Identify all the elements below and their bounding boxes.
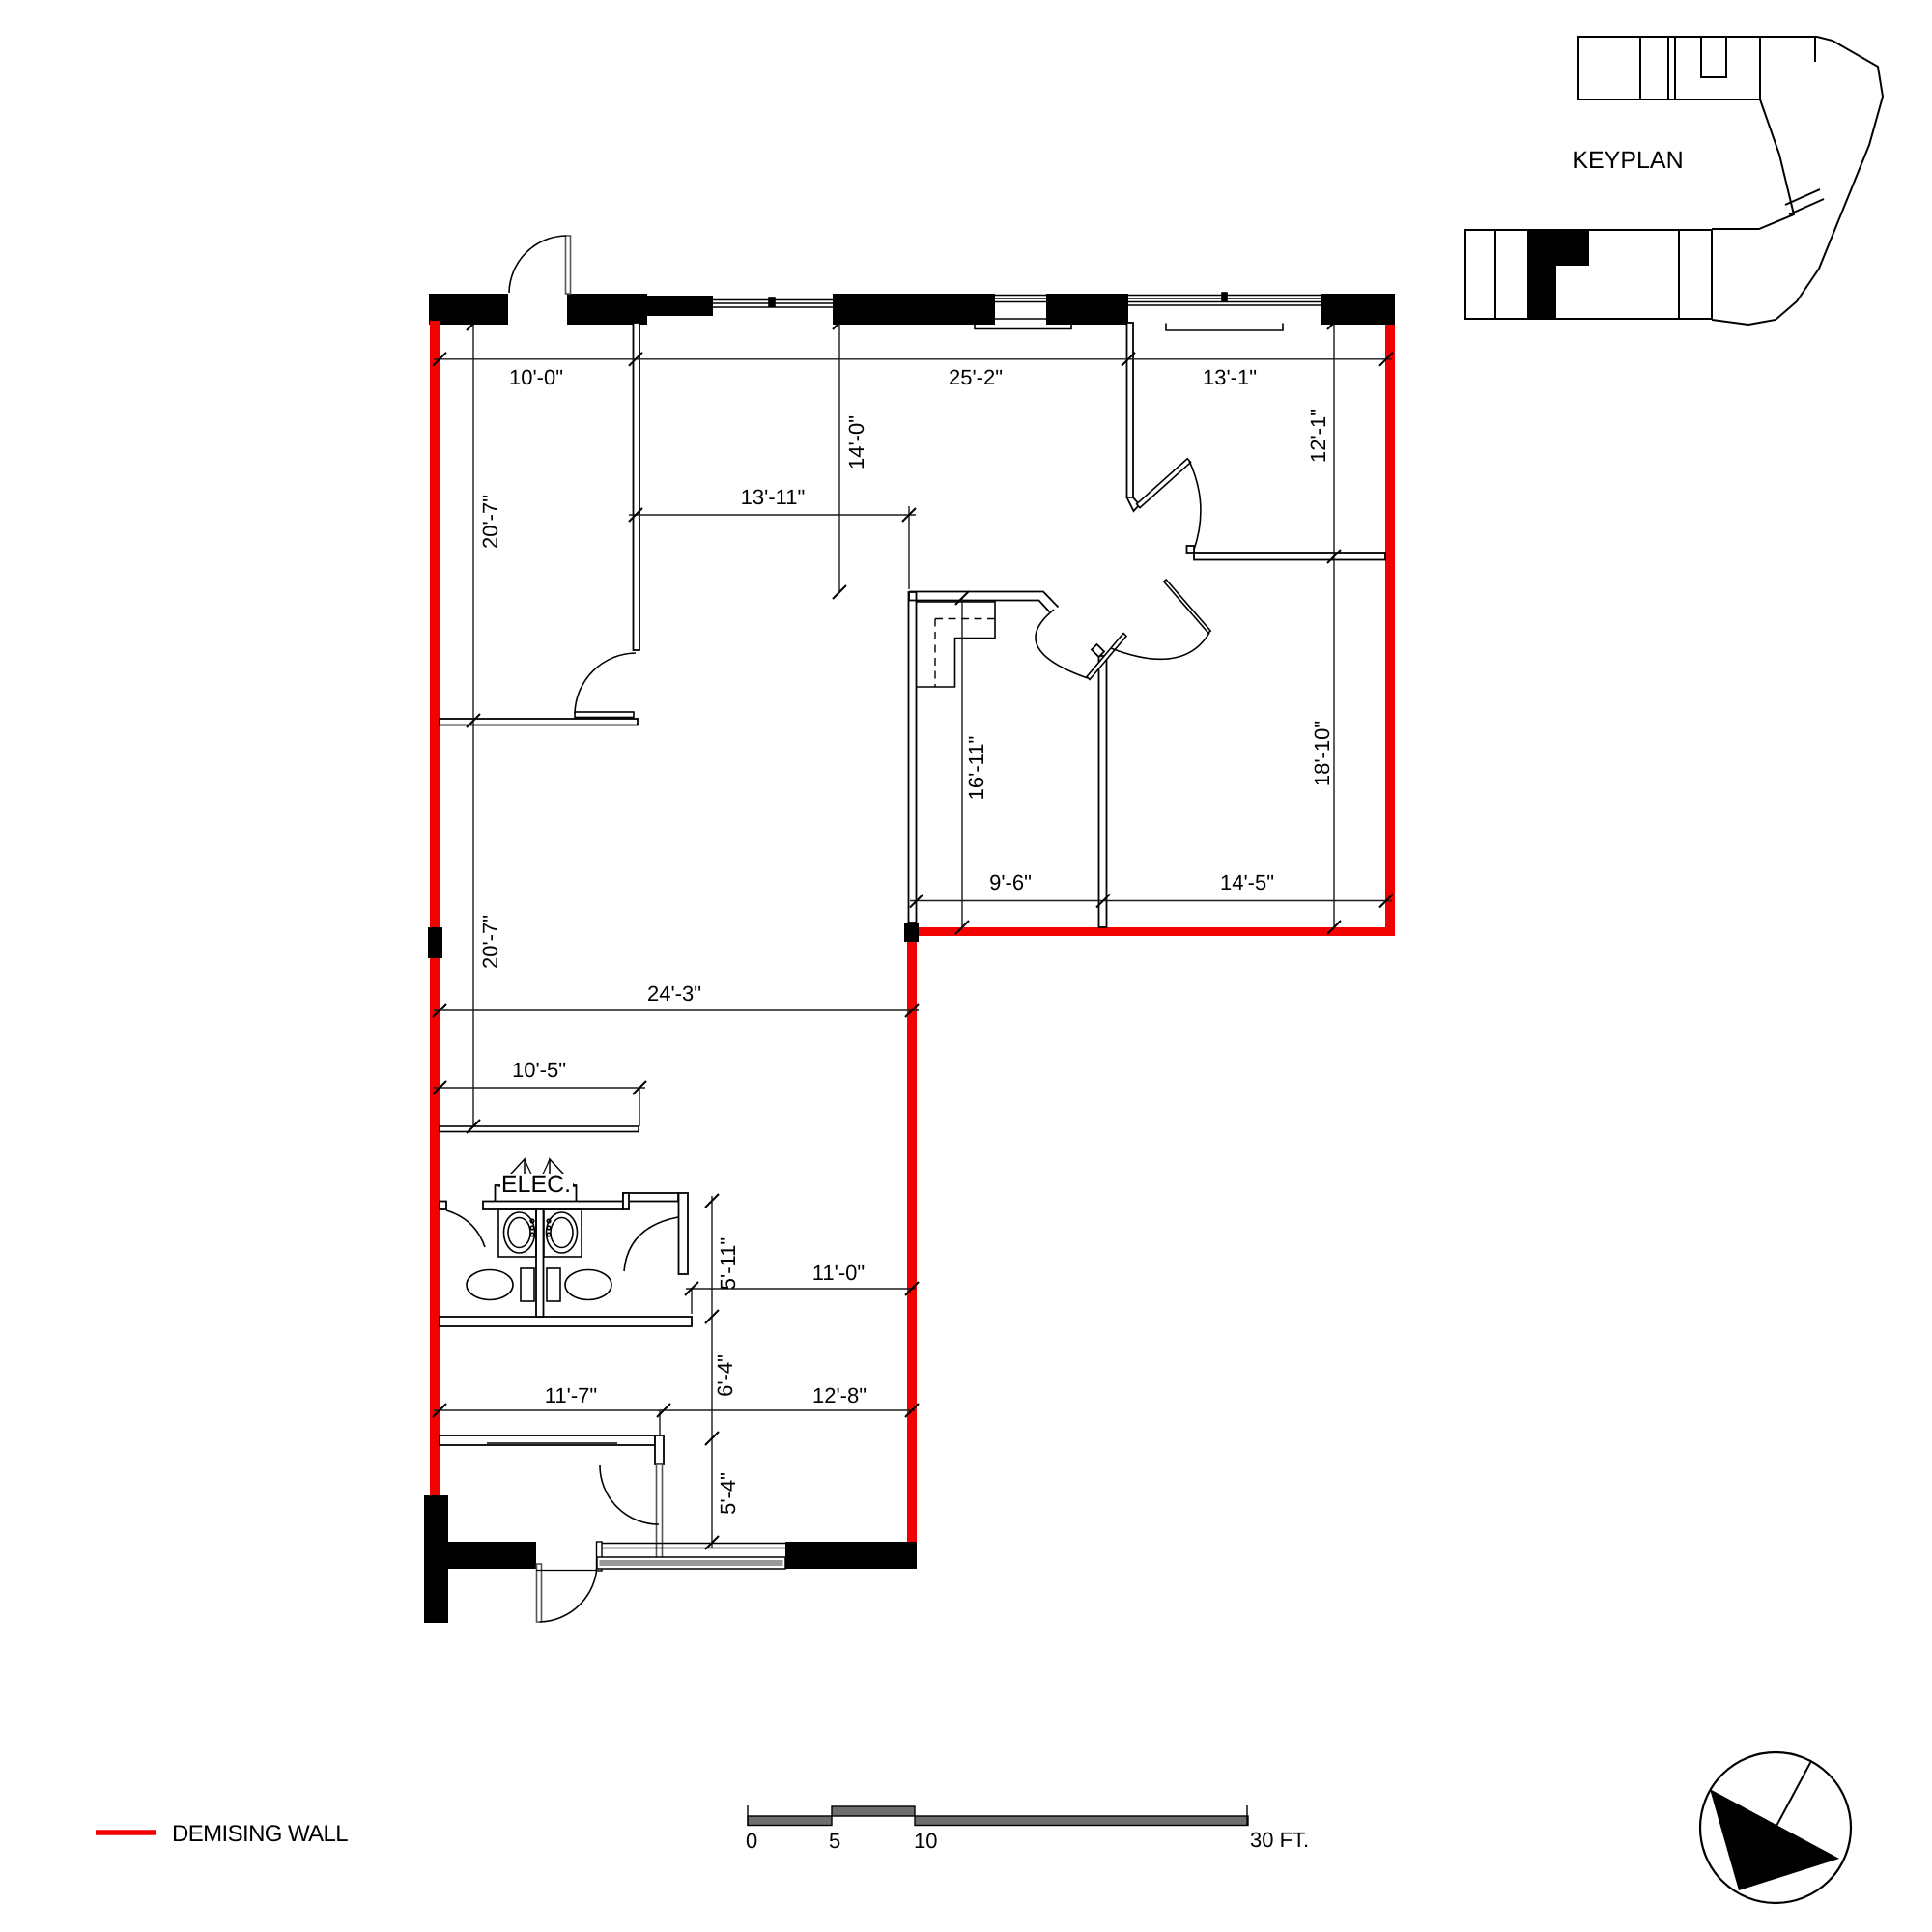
svg-text:5: 5 [829, 1829, 840, 1853]
svg-text:DEMISING WALL: DEMISING WALL [172, 1821, 348, 1847]
svg-text:30 FT.: 30 FT. [1250, 1828, 1309, 1852]
svg-text:9'-6": 9'-6" [989, 870, 1032, 895]
svg-text:6'-4": 6'-4" [713, 1354, 737, 1397]
svg-text:18'-10": 18'-10" [1310, 721, 1334, 786]
svg-text:25'-2": 25'-2" [949, 365, 1003, 389]
svg-text:11'-7": 11'-7" [545, 1383, 597, 1407]
svg-text:13'-1": 13'-1" [1203, 365, 1257, 389]
svg-text:16'-11": 16'-11" [964, 736, 988, 801]
svg-text:20'-7": 20'-7" [478, 495, 502, 549]
svg-text:10: 10 [914, 1829, 937, 1853]
svg-text:10'-0": 10'-0" [509, 365, 563, 389]
svg-text:14'-0": 14'-0" [844, 415, 868, 469]
svg-text:11'-0": 11'-0" [812, 1261, 865, 1285]
svg-text:12'-8": 12'-8" [812, 1383, 867, 1407]
svg-text:13'-11": 13'-11" [741, 485, 806, 509]
svg-text:5'-11": 5'-11" [716, 1237, 740, 1290]
svg-text:24'-3": 24'-3" [647, 981, 701, 1006]
svg-text:14'-5": 14'-5" [1220, 870, 1274, 895]
svg-text:KEYPLAN: KEYPLAN [1572, 147, 1683, 174]
svg-text:5'-4": 5'-4" [716, 1472, 740, 1515]
svg-text:20'-7": 20'-7" [478, 915, 502, 969]
svg-text:0: 0 [746, 1829, 757, 1853]
svg-text:12'-1": 12'-1" [1306, 409, 1330, 463]
svg-text:ELEC.: ELEC. [501, 1171, 571, 1198]
svg-text:10'-5": 10'-5" [512, 1058, 566, 1082]
